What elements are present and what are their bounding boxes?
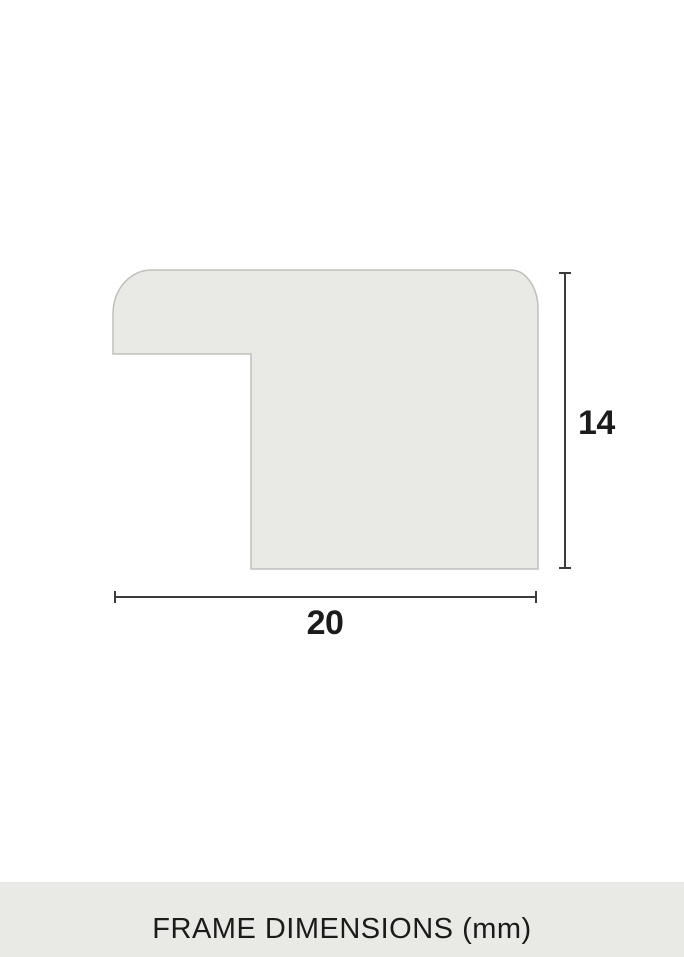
width-dimension-value: 20 bbox=[285, 606, 365, 640]
profile-diagram-canvas bbox=[0, 0, 684, 957]
height-dimension-value: 14 bbox=[578, 406, 615, 440]
frame-dimensions-diagram: 14 20 FRAME DIMENSIONS (mm) bbox=[0, 0, 684, 957]
width-dimension-line bbox=[115, 591, 536, 603]
height-dimension-line bbox=[559, 273, 571, 568]
caption-text: FRAME DIMENSIONS (mm) bbox=[152, 913, 531, 946]
caption-bar: FRAME DIMENSIONS (mm) bbox=[0, 882, 684, 957]
frame-profile-shape bbox=[113, 270, 538, 569]
